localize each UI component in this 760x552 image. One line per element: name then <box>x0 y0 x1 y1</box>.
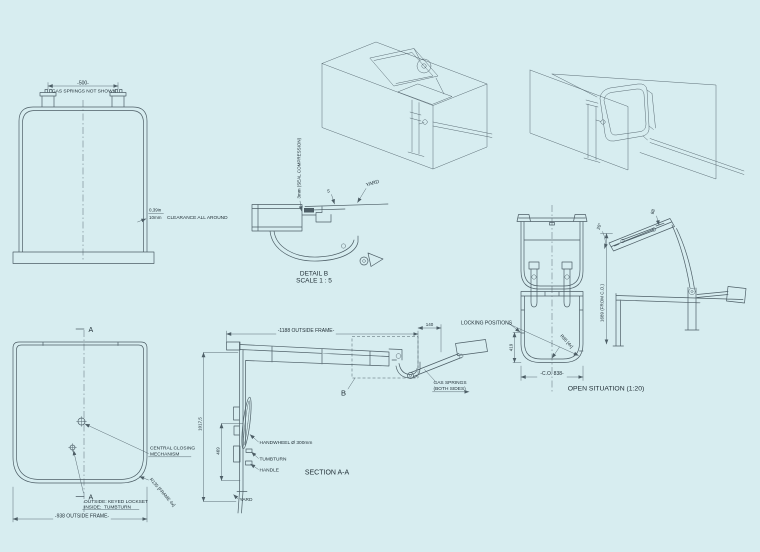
detail-b-linework <box>252 204 388 267</box>
open-front-right-pivot <box>565 275 569 279</box>
section-hinge-pivot <box>408 373 414 379</box>
yard-label-detail: YARD <box>365 179 380 189</box>
tumbturn-leader <box>252 452 259 459</box>
iso-closed-linework <box>530 70 744 179</box>
view-isometric-open <box>322 42 492 169</box>
handwheel-inner <box>242 400 250 445</box>
iso-open-linework <box>322 42 492 169</box>
dim-419-label: 419 <box>509 343 514 351</box>
open-side-linework <box>609 219 746 347</box>
view-open-side: 20° 88 1689 (FROM C.O.) <box>596 208 746 346</box>
view-section-aa: -1188 OUTSIDE FRAME- 140 B GAS SPRINGS (… <box>198 322 488 513</box>
dim-1188-label: -1188 OUTSIDE FRAME- <box>278 328 335 334</box>
closed-hatch-linework <box>13 90 154 264</box>
detail-b-seal-block <box>304 208 314 213</box>
handle-note: HANDLE <box>260 468 279 474</box>
dim-5-leader <box>332 195 335 205</box>
lockset-hole-cross <box>69 444 77 452</box>
tumbturn-note: TUMBTURN <box>260 457 287 463</box>
detail-b-callout-line <box>348 378 355 389</box>
side-hinge-pin <box>691 290 693 292</box>
detail-b-callout-label: B <box>341 389 346 398</box>
detail-b-boundary <box>352 337 418 379</box>
dim-1017-label: 1017,5 <box>198 417 203 431</box>
handwheel-leader <box>250 435 259 443</box>
clearance-note: CLEARANCE ALL AROUND <box>167 215 228 221</box>
dim-20deg-label: 20° <box>596 222 603 230</box>
open-front-left-pivot <box>532 275 536 279</box>
detail-b-scale: SCALE 1 : 5 <box>296 278 332 285</box>
dim-469-label: 469 <box>216 447 221 455</box>
angle-arc <box>603 232 606 249</box>
lockset-note-line2-value: TUMBTURN <box>104 505 131 511</box>
locking-positions-note: LOCKING POSITIONS <box>461 321 513 327</box>
r85-label: R85 [4x] <box>559 333 574 349</box>
lockset-note-line2-label: INSIDE: <box>84 505 101 511</box>
dim-1017-extensions <box>204 353 239 502</box>
seal-leader <box>300 201 302 211</box>
handwheel-note: HANDWHEEL Ø 300mm <box>260 440 313 446</box>
view-isometric-closed <box>530 70 744 179</box>
clearance-inches: 0,39in <box>149 208 162 213</box>
dim-co838-label: -C.O. 838- <box>540 371 564 377</box>
lockset-note-line1: OUTSIDE: KEYED LOCKSET <box>84 499 148 505</box>
r135-leader <box>140 477 149 481</box>
dim-88-label: 88 <box>650 208 656 215</box>
dim-938-label: -938 OUTSIDE FRAME- <box>55 513 110 519</box>
drawing-canvas: -500- GAS SPRINGS NOT SHOWN 0,39in 10mm … <box>0 0 760 552</box>
clearance-mm: 10mm <box>149 215 162 220</box>
view-front: A A CENTRAL CLOSING MECHANISM OUTSIDE: K… <box>13 327 195 522</box>
open-situation-title: OPEN SITUATION (1:20) <box>568 386 645 393</box>
detail-b-pivot <box>360 257 368 265</box>
detail-b-roller <box>341 244 345 248</box>
section-a-top-label: A <box>89 327 94 334</box>
detail-b-pivot-pin <box>363 260 366 263</box>
view-closed-hatch: -500- GAS SPRINGS NOT SHOWN 0,39in 10mm … <box>13 81 228 264</box>
dim-500-label: -500- <box>77 81 89 87</box>
view-detail-b: 3mm (SEAL COMPRESSION) 5 YARD DETAIL B S… <box>252 137 388 284</box>
section-aa-linework <box>227 340 488 514</box>
yard-leader-section <box>234 495 239 500</box>
r85-leader <box>552 347 560 358</box>
view-open-front: LOCKING POSITIONS 419 R85 [4x] -C.O. 838… <box>461 205 644 393</box>
central-hole-cross <box>77 417 87 427</box>
r135-label: R135 [FRAME 4x] <box>149 477 177 508</box>
dim-1689-label: 1689 (FROM C.O.) <box>600 283 605 322</box>
handle-leader <box>251 464 259 470</box>
central-note-line1: CENTRAL CLOSING <box>150 446 195 452</box>
clearance-leader <box>138 219 147 222</box>
dim-419-extensions <box>513 333 521 363</box>
dim-140-label: 140 <box>426 322 434 327</box>
dim-5-label: 5 <box>327 189 330 194</box>
section-aa-title: SECTION A-A <box>305 470 350 477</box>
seal-compression-note: 3mm (SEAL COMPRESSION) <box>297 137 302 198</box>
gas-springs-note: GAS SPRINGS NOT SHOWN <box>52 89 117 95</box>
side-hinge-pivot <box>689 288 695 294</box>
section-latch-roller <box>396 354 401 359</box>
yard-leader <box>358 189 367 203</box>
gas-springs-note-line1: GAS SPRINGS <box>434 380 467 386</box>
central-note-line2: MECHANISM <box>150 452 179 458</box>
front-view-linework <box>13 329 147 497</box>
technical-drawing: -500- GAS SPRINGS NOT SHOWN 0,39in 10mm … <box>0 0 760 552</box>
detail-b-title: DETAIL B <box>300 271 328 278</box>
yard-label-section: YARD <box>240 497 254 503</box>
gas-springs-note-line2: (BOTH SIDES) <box>434 386 467 392</box>
iso-open-handle <box>423 120 428 125</box>
handwheel-ellipse <box>240 397 253 449</box>
